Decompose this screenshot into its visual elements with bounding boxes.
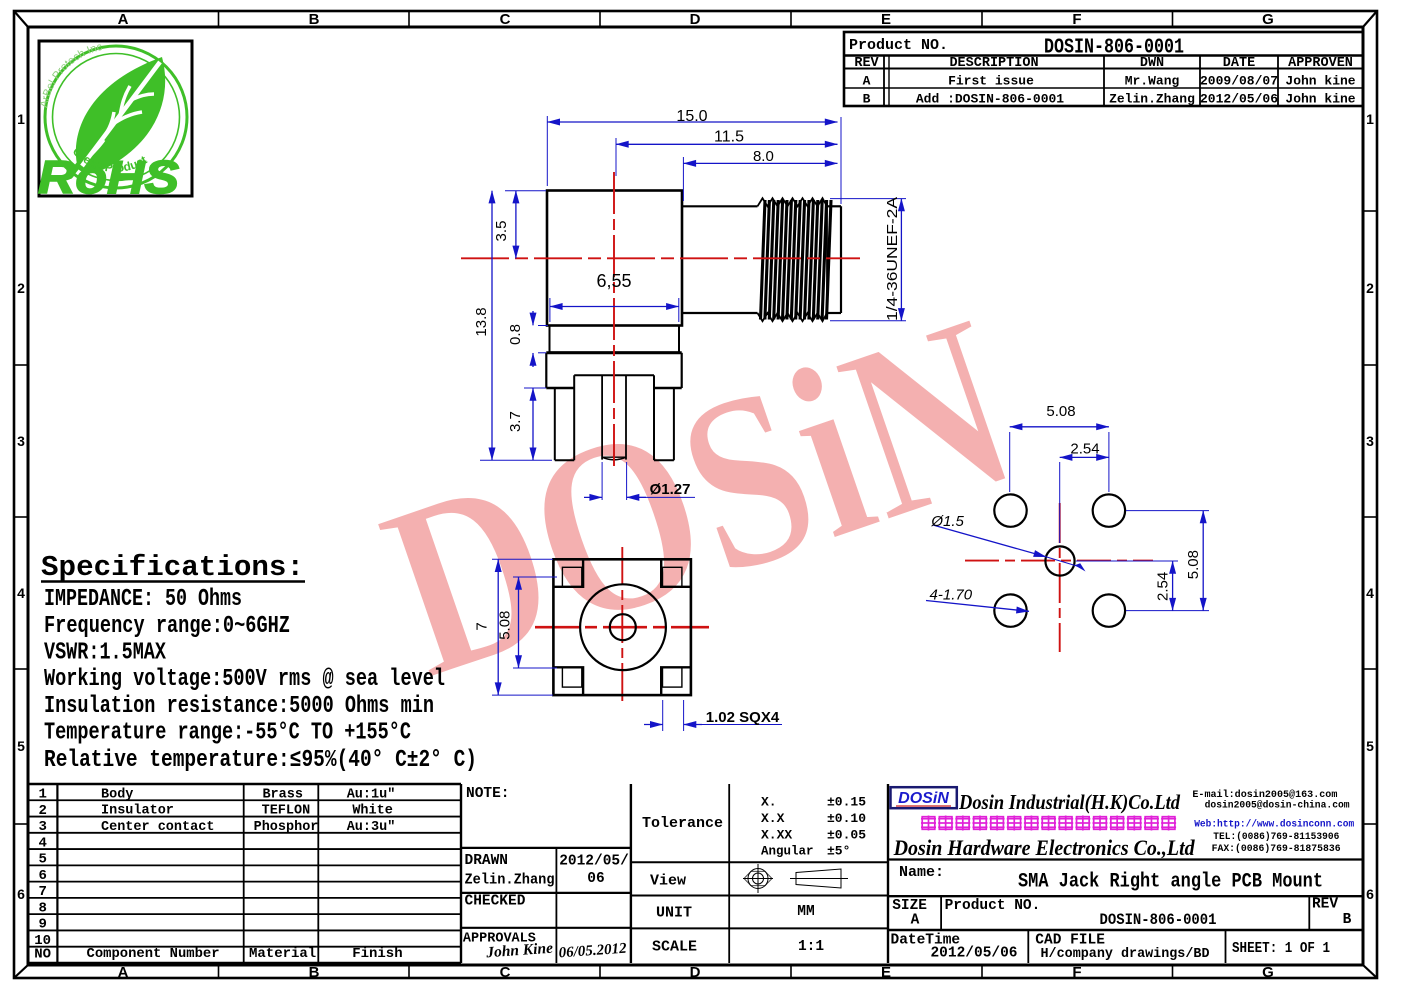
svg-text:Au:1u″: Au:1u″: [347, 787, 396, 802]
svg-text:IMPEDANCE: 50 Ohms: IMPEDANCE: 50 Ohms: [44, 586, 242, 613]
svg-text:D: D: [690, 964, 701, 981]
svg-text:Specifications:: Specifications:: [41, 551, 304, 584]
svg-text:MM: MM: [797, 904, 814, 920]
svg-text:Body: Body: [101, 787, 133, 802]
svg-text:2012/05/06: 2012/05/06: [930, 946, 1017, 962]
svg-text:Tolerance: Tolerance: [642, 815, 723, 832]
svg-text:DOSIN-806-0001: DOSIN-806-0001: [1100, 911, 1217, 929]
svg-text:3.7: 3.7: [507, 411, 524, 432]
svg-text:3: 3: [38, 819, 46, 835]
svg-text:A: A: [863, 74, 871, 89]
svg-text:DATE: DATE: [1223, 56, 1255, 71]
svg-text:X.X: X.X: [761, 811, 785, 826]
svg-text:Material: Material: [249, 946, 316, 962]
svg-text:Phosphor: Phosphor: [254, 820, 319, 835]
svg-text:Mr.Wang: Mr.Wang: [1125, 74, 1180, 89]
svg-text:A: A: [911, 913, 920, 929]
svg-text:Ø1.5: Ø1.5: [930, 513, 964, 530]
svg-text:5: 5: [38, 852, 46, 868]
svg-text:A: A: [118, 964, 129, 981]
svg-text:3: 3: [1366, 433, 1374, 449]
svg-text:±0.15: ±0.15: [827, 795, 866, 810]
svg-text:Relative temperature:≤95%(40°: Relative temperature:≤95%(40° C±2° C): [44, 747, 477, 774]
svg-text:G: G: [1262, 11, 1274, 28]
svg-text:DESCRIPTION: DESCRIPTION: [949, 56, 1038, 71]
svg-text:6: 6: [38, 868, 46, 884]
svg-text:Component Number: Component Number: [87, 946, 220, 962]
svg-text:Frequency range:0~6GHZ: Frequency range:0~6GHZ: [44, 613, 290, 640]
svg-text:E: E: [881, 964, 891, 981]
svg-text:View: View: [650, 873, 686, 890]
svg-text:3: 3: [17, 433, 25, 449]
svg-text:±5°: ±5°: [827, 844, 850, 859]
svg-text:VSWR:1.5MAX: VSWR:1.5MAX: [44, 640, 166, 667]
svg-text:D: D: [690, 11, 701, 28]
svg-text:±0.05: ±0.05: [827, 828, 866, 843]
svg-text:4: 4: [38, 835, 46, 851]
svg-text:2.54: 2.54: [1155, 572, 1172, 601]
svg-text:4: 4: [1366, 585, 1374, 601]
svg-text:C: C: [500, 964, 511, 981]
svg-text:Angular: Angular: [761, 845, 814, 859]
svg-text:X.XX: X.XX: [761, 828, 792, 843]
svg-text:CHECKED: CHECKED: [465, 894, 526, 910]
svg-text:White: White: [352, 804, 393, 819]
svg-text:13.8: 13.8: [473, 307, 490, 336]
svg-text:2: 2: [38, 803, 46, 819]
svg-text:Add :DOSIN-806-0001: Add :DOSIN-806-0001: [916, 92, 1064, 107]
svg-text:5.08: 5.08: [1046, 403, 1075, 420]
svg-text:Dosin Industrial(H.K)Co.Ltd: Dosin Industrial(H.K)Co.Ltd: [958, 790, 1180, 814]
svg-text:B: B: [863, 92, 871, 107]
svg-text:8: 8: [38, 900, 46, 916]
svg-text:F: F: [1072, 11, 1081, 28]
svg-text:dosin2005@dosin-china.com: dosin2005@dosin-china.com: [1205, 800, 1350, 812]
svg-text:Product NO.: Product NO.: [945, 898, 1041, 914]
svg-text:TEL:(0086)769-81153906: TEL:(0086)769-81153906: [1213, 831, 1339, 843]
svg-text:7: 7: [473, 622, 490, 630]
svg-text:2012/05/: 2012/05/: [559, 854, 629, 870]
svg-text:SMA Jack Right angle PCB Mount: SMA Jack Right angle PCB Mount: [1018, 871, 1323, 894]
svg-text:B: B: [309, 964, 320, 981]
svg-text:±0.10: ±0.10: [827, 811, 866, 826]
svg-text:NO: NO: [34, 947, 51, 963]
svg-text:X.: X.: [761, 795, 777, 810]
svg-text:Zelin.Zhang: Zelin.Zhang: [465, 873, 555, 889]
svg-text:9: 9: [38, 917, 46, 933]
svg-text:1: 1: [1366, 111, 1374, 127]
svg-text:Web:http://www.dosinconn.com: Web:http://www.dosinconn.com: [1194, 819, 1354, 831]
svg-text:APPROVEN: APPROVEN: [1288, 56, 1353, 71]
svg-text:John kine: John kine: [1285, 92, 1355, 107]
svg-text:UNIT: UNIT: [656, 905, 692, 922]
svg-text:DRAWN: DRAWN: [465, 853, 509, 869]
svg-text:C: C: [500, 11, 511, 28]
svg-text:Dosin Hardware Electronics Co.: Dosin Hardware Electronics Co.,Ltd: [893, 835, 1196, 860]
svg-text:B: B: [309, 11, 320, 28]
svg-text:2012/05/06: 2012/05/06: [1200, 92, 1278, 107]
svg-text:Brass: Brass: [262, 787, 303, 802]
svg-text:11.5: 11.5: [714, 129, 744, 146]
svg-text:2: 2: [1366, 280, 1374, 296]
svg-text:2009/08/07: 2009/08/07: [1200, 74, 1278, 89]
svg-text:DWN: DWN: [1140, 56, 1164, 71]
svg-text:7: 7: [38, 884, 46, 900]
svg-text:06: 06: [587, 871, 604, 887]
svg-text:E: E: [881, 11, 891, 28]
svg-text:4-1.70: 4-1.70: [930, 587, 973, 604]
svg-text:0.8: 0.8: [507, 324, 524, 345]
svg-text:6: 6: [1366, 886, 1374, 902]
svg-text:F: F: [1072, 964, 1081, 981]
svg-text:H/company drawings/BD: H/company drawings/BD: [1041, 947, 1210, 962]
svg-text:G: G: [1262, 964, 1274, 981]
svg-text:4: 4: [17, 585, 25, 601]
svg-text:1.02 SQX4: 1.02 SQX4: [706, 709, 780, 726]
svg-text:Au:3u″: Au:3u″: [347, 820, 396, 835]
svg-text:15.0: 15.0: [676, 108, 707, 125]
svg-text:SHEET: 1 OF 1: SHEET: 1 OF 1: [1232, 941, 1330, 957]
svg-text:1/4-36UNEF-2A: 1/4-36UNEF-2A: [885, 197, 901, 321]
svg-text:TEFLON: TEFLON: [262, 804, 311, 819]
svg-text:John kine: John kine: [1285, 74, 1355, 89]
svg-text:1: 1: [38, 787, 46, 803]
svg-text:5.08: 5.08: [496, 611, 513, 640]
svg-text:6,55: 6,55: [596, 271, 631, 291]
svg-text:5.08: 5.08: [1185, 550, 1202, 579]
svg-text:5: 5: [17, 738, 25, 754]
svg-text:Temperature range:-55°C TO +15: Temperature range:-55°C TO +155°C: [44, 720, 411, 747]
svg-text:5: 5: [1366, 738, 1374, 754]
svg-text:3.5: 3.5: [493, 221, 510, 242]
svg-text:A: A: [118, 11, 129, 28]
svg-text:DOSiN: DOSiN: [898, 790, 949, 807]
svg-text:6: 6: [17, 886, 25, 902]
svg-text:Name:: Name:: [899, 864, 944, 881]
svg-text:SCALE: SCALE: [652, 939, 697, 956]
svg-text:RoHS: RoHS: [38, 151, 179, 203]
svg-text:First issue: First issue: [948, 74, 1034, 89]
svg-text:NOTE:: NOTE:: [466, 786, 510, 802]
svg-text:2: 2: [17, 280, 25, 296]
svg-text:Working voltage:500V rms @ sea: Working voltage:500V rms @ sea level: [44, 666, 445, 693]
svg-text:Finish: Finish: [352, 946, 402, 962]
svg-text:Product NO.: Product NO.: [849, 37, 948, 54]
svg-text:REV: REV: [854, 56, 879, 71]
svg-text:1: 1: [17, 111, 25, 127]
svg-text:1:1: 1:1: [798, 939, 824, 955]
svg-text:Insulation resistance:5000 Ohm: Insulation resistance:5000 Ohms min: [44, 693, 434, 720]
svg-text:B: B: [1343, 912, 1352, 928]
svg-text:8.0: 8.0: [753, 148, 774, 165]
svg-text:Zelin.Zhang: Zelin.Zhang: [1109, 92, 1195, 107]
svg-text:Ø1.27: Ø1.27: [650, 481, 691, 498]
svg-text:FAX:(0086)769-81875836: FAX:(0086)769-81875836: [1212, 843, 1341, 855]
svg-text:Center contact: Center contact: [101, 820, 214, 835]
svg-text:REV: REV: [1312, 897, 1338, 913]
svg-text:Insulator: Insulator: [101, 804, 174, 819]
svg-text:2.54: 2.54: [1070, 441, 1099, 458]
